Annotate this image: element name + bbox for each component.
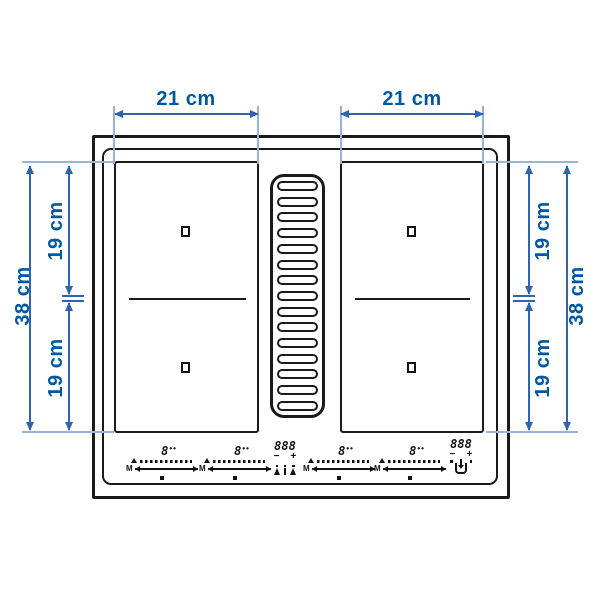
timer-display: 888: [274, 441, 296, 451]
power-level-ramp-icon: [213, 460, 265, 463]
vent-slat: [277, 401, 318, 411]
vent-slat: [277, 354, 318, 364]
dim-label-left-lower: 19 cm: [45, 328, 67, 408]
extractor-cluster-right: 888 − +: [442, 439, 480, 474]
power-display: 8 ••: [126, 446, 198, 456]
product-dimension-diagram: 21 cm 21 cm 38 cm 19 cm 19 cm 19 cm 19 c…: [0, 0, 600, 600]
slider-handle-icon: [408, 476, 412, 480]
vent-slat: [277, 260, 318, 270]
slider-double-arrow-icon: [312, 468, 375, 470]
plus-label: +: [291, 453, 297, 460]
level-arrow-icon: [308, 458, 314, 463]
timer-cluster-center: 888 − +: [266, 441, 304, 475]
minus-label: −: [274, 453, 280, 460]
power-digit: 8: [338, 446, 345, 456]
extractor-vent: [270, 174, 325, 418]
slider-double-arrow-icon: [135, 468, 198, 470]
boost-figure-icon: [290, 465, 296, 476]
level-arrow-icon: [379, 458, 385, 463]
dim-break-mark: [62, 295, 84, 297]
level-arrow-icon: [131, 458, 137, 463]
extension-line: [486, 161, 578, 163]
cooking-zone-right: [340, 161, 484, 433]
dim-label-top-right: 21 cm: [362, 88, 462, 110]
power-level-ramp-icon: [388, 460, 440, 463]
burner-marker: [407, 226, 416, 237]
zone-control-group-2: 8 •• M: [199, 446, 271, 480]
dim-line-top-right: [341, 113, 483, 115]
vent-slat: [277, 275, 318, 285]
zone-control-group-3: 8 •• M: [303, 446, 375, 480]
dim-line-right-upper: [528, 166, 530, 294]
dim-label-right-lower: 19 cm: [532, 328, 554, 408]
power-display: 8 ••: [303, 446, 375, 456]
slider-handle-icon: [233, 476, 237, 480]
vent-slat: [277, 244, 318, 254]
dim-line-right-lower: [528, 303, 530, 430]
power-level-ramp-icon: [140, 460, 192, 463]
power-level-ramp-icon: [317, 460, 369, 463]
dim-break-mark: [513, 295, 535, 297]
extension-line: [22, 161, 114, 163]
zone-control-group-1: 8 •• M: [126, 446, 198, 480]
dim-label-left-upper: 19 cm: [45, 191, 67, 271]
vent-slat: [277, 291, 318, 301]
vent-slat: [277, 338, 318, 348]
zone-divider-left: [129, 298, 246, 300]
burner-marker: [407, 362, 416, 373]
zone-control-group-4: 8 •• M: [374, 446, 446, 480]
zone-divider-right: [355, 298, 470, 300]
slider-handle-icon: [337, 476, 341, 480]
extractor-hood-icon: [450, 460, 472, 474]
manual-mode-label: M: [374, 465, 381, 473]
dim-line-top-left: [115, 113, 258, 115]
dim-label-top-left: 21 cm: [136, 88, 236, 110]
dim-break-mark: [62, 300, 84, 302]
extractor-display: 888: [450, 439, 472, 449]
dim-break-mark: [513, 300, 535, 302]
plus-label: +: [467, 451, 473, 458]
manual-mode-label: M: [126, 465, 133, 473]
manual-mode-label: M: [199, 465, 206, 473]
power-dots-icon: ••: [417, 446, 425, 451]
boost-figure-icon: [274, 465, 280, 476]
power-digit: 8: [409, 446, 416, 456]
dim-label-right-total: 38 cm: [566, 256, 588, 336]
cooking-zone-left: [114, 161, 259, 433]
dim-label-left-total: 38 cm: [12, 256, 34, 336]
extension-line: [22, 431, 114, 433]
vent-slat: [277, 228, 318, 238]
power-digit: 8: [161, 446, 168, 456]
vent-slat: [277, 369, 318, 379]
slider-double-arrow-icon: [208, 468, 271, 470]
burner-marker: [181, 362, 190, 373]
vent-slat: [277, 212, 318, 222]
dim-line-left-upper: [68, 166, 70, 294]
power-display: 8 ••: [199, 446, 271, 456]
minus-label: −: [450, 451, 456, 458]
slider-double-arrow-icon: [383, 468, 446, 470]
extension-line: [486, 431, 578, 433]
manual-mode-label: M: [303, 465, 310, 473]
power-digit: 8: [234, 446, 241, 456]
slider-handle-icon: [160, 476, 164, 480]
pause-bar-icon: [284, 465, 287, 476]
dim-line-left-lower: [68, 303, 70, 430]
vent-slat: [277, 322, 318, 332]
level-arrow-icon: [204, 458, 210, 463]
vent-slat: [277, 181, 318, 191]
vent-slat: [277, 307, 318, 317]
power-dots-icon: ••: [346, 446, 354, 451]
power-dots-icon: ••: [242, 446, 250, 451]
vent-slat: [277, 197, 318, 207]
vent-slat: [277, 385, 318, 395]
burner-marker: [181, 226, 190, 237]
dim-label-right-upper: 19 cm: [532, 191, 554, 271]
power-dots-icon: ••: [169, 446, 177, 451]
power-display: 8 ••: [374, 446, 446, 456]
